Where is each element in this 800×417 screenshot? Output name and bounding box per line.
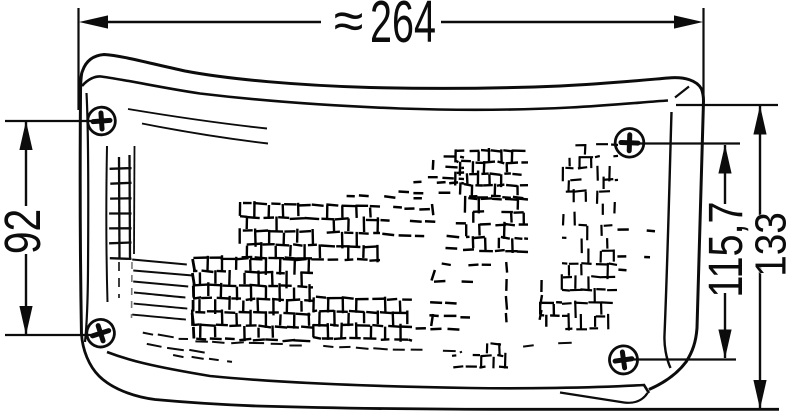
svg-text:133: 133 [745, 212, 795, 277]
svg-text:92: 92 [0, 209, 51, 254]
svg-text:264: 264 [370, 0, 436, 55]
svg-text:≈: ≈ [334, 0, 364, 51]
